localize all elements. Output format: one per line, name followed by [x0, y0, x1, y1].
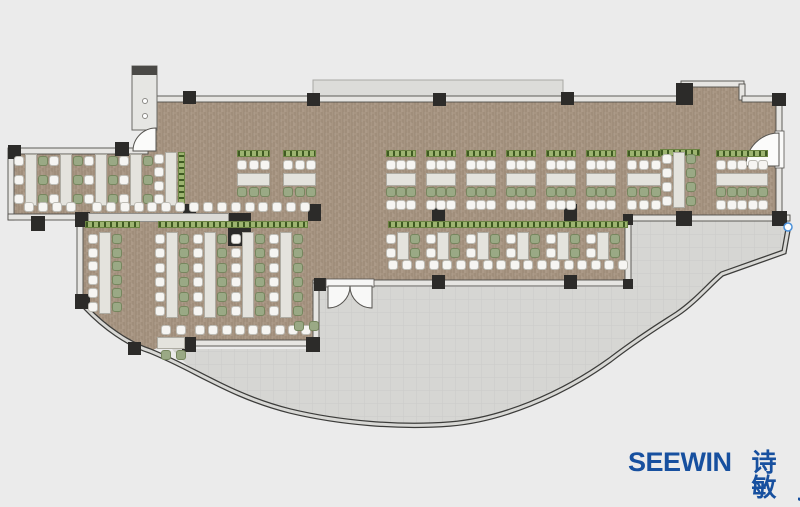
structural-column — [128, 342, 141, 355]
brand-logo: SEEWIN 诗敏 — [628, 449, 800, 501]
elevator-core — [132, 66, 157, 130]
structural-column — [228, 213, 251, 246]
structural-column — [314, 278, 326, 291]
structural-column — [31, 216, 45, 231]
structural-column — [432, 275, 445, 289]
structural-column — [308, 204, 321, 221]
wall-segment — [77, 218, 83, 304]
structural-column — [561, 92, 574, 105]
structural-column — [564, 275, 577, 289]
entry-door-top-left — [133, 128, 156, 151]
floor-plan-page: SEEWIN 诗敏 — [0, 0, 800, 507]
structural-column — [676, 211, 692, 226]
structural-column — [75, 212, 90, 227]
structural-column — [183, 91, 196, 104]
structural-column — [623, 279, 633, 289]
structural-column — [306, 337, 320, 352]
wall-marker-dot — [784, 223, 792, 231]
structural-column — [182, 337, 196, 352]
structural-column — [115, 142, 129, 156]
wall-segment — [148, 96, 685, 102]
brand-cjk: 诗敏 — [752, 451, 800, 501]
brand-wordmark: SEEWIN — [628, 449, 732, 476]
floor-plan-canvas — [0, 0, 800, 507]
structural-column — [307, 93, 320, 106]
wall-segment — [370, 280, 630, 286]
structural-column — [676, 83, 693, 105]
wall-segment — [313, 283, 319, 345]
structural-column — [772, 93, 786, 106]
wall-segment — [8, 214, 84, 220]
structural-column — [183, 204, 196, 221]
structural-column — [433, 93, 446, 106]
structural-column — [8, 145, 21, 159]
structural-column — [623, 214, 633, 225]
structural-column — [75, 294, 90, 309]
wall-segment — [625, 215, 790, 221]
wall-segment — [625, 218, 631, 285]
structural-column — [432, 204, 445, 221]
structural-column — [564, 204, 577, 221]
